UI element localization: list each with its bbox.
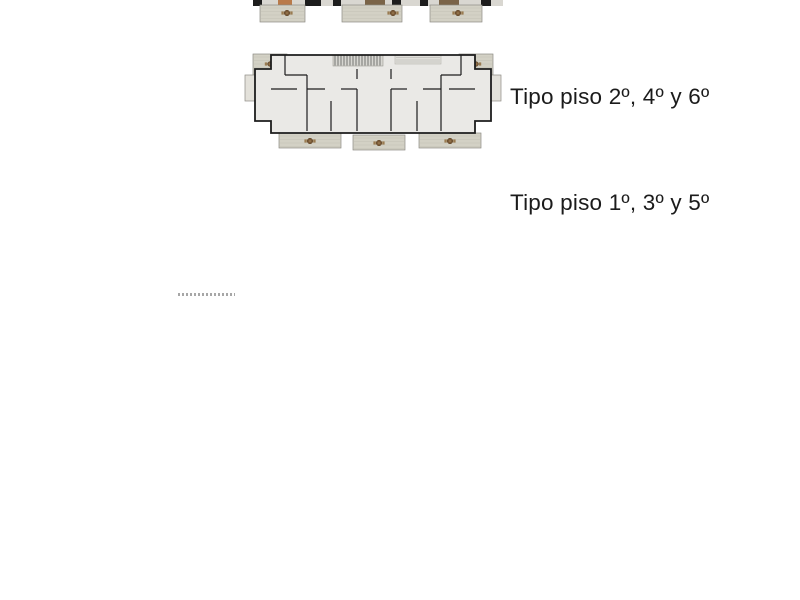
chair-icon <box>396 11 398 14</box>
floor-plan-atico-partial <box>253 0 503 24</box>
chair-icon <box>373 141 375 144</box>
chair-icon <box>313 139 315 142</box>
chair-icon <box>453 139 455 142</box>
side-balcony <box>245 75 255 101</box>
chair-icon <box>304 139 306 142</box>
chair-icon <box>452 11 454 14</box>
furniture-fragment <box>439 0 459 5</box>
side-balcony <box>491 75 501 101</box>
plan-label-246: Tipo piso 2º, 4º y 6º <box>510 84 709 110</box>
skylight <box>395 55 441 64</box>
floor-plan-type-135 <box>243 152 503 260</box>
apartment-interior <box>255 55 491 133</box>
architectural-brochure-page: Tipo piso 2º, 4º y 6º Tipo piso 1º, 3º y… <box>0 0 800 600</box>
chair-icon <box>387 11 389 14</box>
floor-plan-type-246 <box>243 43 503 151</box>
chair-icon <box>479 62 481 65</box>
wall-fragment <box>333 0 341 6</box>
chair-icon <box>444 139 446 142</box>
chair-icon <box>290 11 292 14</box>
wall-fragment <box>420 0 428 6</box>
furniture-fragment <box>278 0 292 5</box>
wall-fragment <box>305 0 321 6</box>
wall-fragment <box>481 0 491 6</box>
site-plan-caption-microtext <box>178 293 235 296</box>
furniture-fragment <box>365 0 385 5</box>
plan-label-135: Tipo piso 1º, 3º y 5º <box>510 190 709 216</box>
ground-floor-site-plan <box>167 297 613 538</box>
chair-icon <box>281 11 283 14</box>
chair-icon <box>382 141 384 144</box>
chair-icon <box>461 11 463 14</box>
stairwell <box>333 55 383 66</box>
chair-icon <box>265 62 267 65</box>
